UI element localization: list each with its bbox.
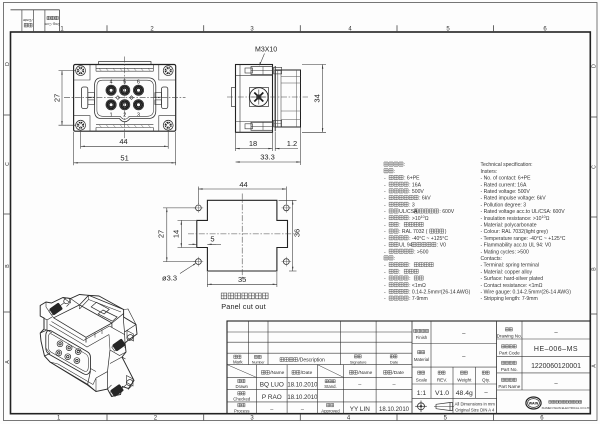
- svg-text:/Description: /Description: [298, 358, 325, 364]
- svg-text:/Date: /Date: [301, 370, 313, 376]
- svg-text:36: 36: [293, 229, 302, 237]
- svg-text:Checked: Checked: [233, 397, 251, 402]
- svg-text:: 0.14-2.5mm²(26-14 AWG): : 0.14-2.5mm²(26-14 AWG): [409, 290, 471, 296]
- svg-text::: :: [404, 162, 405, 168]
- svg-text:WAIN: WAIN: [529, 402, 539, 406]
- svg-text:- Rated impulse voltage: 6kV: - Rated impulse voltage: 6kV: [481, 196, 547, 202]
- svg-text:-: -: [384, 276, 386, 282]
- svg-text:-: -: [384, 283, 386, 289]
- svg-text:14: 14: [171, 230, 180, 238]
- svg-text:Stand.: Stand.: [324, 384, 336, 389]
- svg-text:V1.0: V1.0: [435, 390, 449, 397]
- svg-text:Process: Process: [234, 408, 250, 413]
- svg-text:: RAL 7032 (: : RAL 7032 (: [399, 229, 428, 235]
- svg-text:6: 6: [137, 80, 140, 86]
- svg-text:- Rated voltage: 500V: - Rated voltage: 500V: [481, 189, 531, 195]
- svg-text:Finish: Finish: [416, 335, 428, 340]
- svg-text:51: 51: [120, 154, 128, 163]
- svg-text:33.3: 33.3: [260, 152, 275, 161]
- svg-text:: 500V: : 500V: [409, 189, 424, 195]
- svg-text:A: A: [591, 364, 597, 368]
- svg-text:: -40°C ~ +125°C: : -40°C ~ +125°C: [409, 236, 448, 242]
- svg-text:18: 18: [249, 139, 257, 148]
- svg-text:18.10.2010: 18.10.2010: [379, 407, 410, 413]
- svg-text:- Insulation resistance: >1010: - Insulation resistance: >1010​Ω: [481, 215, 550, 222]
- svg-text:D: D: [5, 62, 11, 66]
- svg-text:UL/CSA: UL/CSA: [399, 209, 418, 215]
- svg-text:Dwg. Com: Dwg. Com: [44, 22, 60, 26]
- svg-text:HE–006–MS: HE–006–MS: [534, 346, 578, 353]
- svg-text:-: -: [384, 243, 386, 249]
- svg-text:-: -: [384, 176, 386, 182]
- svg-text:- Temperature range: -40°C ~ +: - Temperature range: -40°C ~ +125°C: [481, 236, 566, 242]
- svg-text:-: -: [384, 182, 386, 188]
- svg-text:Part Code: Part Code: [499, 351, 520, 356]
- svg-text::: :: [394, 256, 395, 262]
- svg-text:REV.: REV.: [437, 378, 447, 383]
- svg-text:18.10.2010: 18.10.2010: [287, 395, 318, 401]
- svg-text:B: B: [591, 267, 597, 271]
- svg-text:Number: Number: [252, 360, 266, 364]
- svg-text:: 6+PE: : 6+PE: [404, 176, 420, 182]
- svg-text::: :: [394, 169, 395, 175]
- svg-text:BQ LUO: BQ LUO: [260, 382, 284, 389]
- svg-text:Mark: Mark: [233, 359, 243, 364]
- svg-text:-: -: [384, 202, 386, 208]
- svg-text:4: 4: [110, 80, 113, 86]
- svg-text:: 6kV: : 6kV: [419, 196, 431, 202]
- svg-text:- Flammability acc.to UL 94: V: - Flammability acc.to UL 94: V0: [481, 243, 552, 249]
- svg-text:Qty.: Qty.: [482, 378, 490, 383]
- svg-text:C: C: [5, 162, 11, 166]
- svg-text:- Colour: RAL 7032(light grey): - Colour: RAL 7032(light grey): [481, 229, 549, 235]
- svg-text:Scale: Scale: [416, 378, 428, 383]
- svg-text:-: -: [384, 209, 386, 215]
- svg-text:XIAMEN WAIN ELECTRICAL CO.LTD: XIAMEN WAIN ELECTRICAL CO.LTD: [541, 406, 590, 410]
- svg-text:-: -: [384, 290, 386, 296]
- svg-text:Part Name: Part Name: [498, 384, 520, 389]
- svg-text:Drawing No.: Drawing No.: [497, 334, 522, 339]
- svg-text:- Contact resistance: <1mΩ: - Contact resistance: <1mΩ: [481, 283, 543, 289]
- svg-text:- Material: polycarbonate: - Material: polycarbonate: [481, 223, 537, 229]
- svg-text:5: 5: [210, 234, 214, 243]
- svg-text:-: -: [384, 229, 386, 235]
- svg-text:- Surface: hard-silver plated: - Surface: hard-silver plated: [481, 276, 544, 282]
- svg-text:-: -: [384, 189, 386, 195]
- svg-text:48.4g: 48.4g: [456, 390, 473, 397]
- svg-text:-: -: [384, 296, 386, 302]
- svg-text:- Wire gauge: 0.14-2.5mm²(26-1: - Wire gauge: 0.14-2.5mm²(26-14 AWG): [481, 290, 572, 296]
- svg-text:- Terminal: spring terminal: - Terminal: spring terminal: [481, 263, 540, 269]
- svg-text:- Mating cycles: >500: - Mating cycles: >500: [481, 249, 529, 255]
- svg-text::: :: [399, 269, 400, 275]
- svg-text:- Rated current: 16A: - Rated current: 16A: [481, 182, 527, 188]
- svg-text:B: B: [5, 264, 11, 268]
- svg-text:: V0: : V0: [437, 243, 446, 249]
- svg-text:-: -: [384, 223, 386, 229]
- svg-text:YY LIN: YY LIN: [350, 406, 371, 413]
- svg-text:UL 94: UL 94: [399, 243, 413, 249]
- svg-text:M3X10: M3X10: [255, 47, 277, 54]
- svg-text:Insters:: Insters:: [481, 169, 498, 175]
- svg-text:All Dimensions in mm: All Dimensions in mm: [455, 401, 496, 406]
- svg-text:Panel cut out: Panel cut out: [221, 302, 266, 311]
- svg-text::: :: [409, 263, 410, 269]
- svg-text:-: -: [384, 236, 386, 242]
- svg-text:D: D: [591, 64, 597, 68]
- svg-text:35: 35: [238, 275, 246, 284]
- svg-text:1.2: 1.2: [287, 139, 297, 148]
- svg-text:/Name: /Name: [270, 370, 284, 376]
- svg-text:Original Size DIN A 4: Original Size DIN A 4: [455, 408, 495, 413]
- svg-text:- Stripping length: 7-9mm: - Stripping length: 7-9mm: [481, 296, 538, 302]
- svg-text:Date: Date: [390, 359, 398, 364]
- svg-text:1:1: 1:1: [417, 390, 427, 397]
- svg-text:/Date: /Date: [22, 18, 32, 23]
- svg-text:1: 1: [110, 112, 113, 118]
- svg-text:): ): [445, 229, 447, 235]
- svg-text:Technical specification:: Technical specification:: [481, 162, 533, 168]
- svg-text:-: -: [384, 249, 386, 255]
- svg-text:27: 27: [52, 94, 61, 102]
- svg-text:3: 3: [137, 112, 140, 118]
- svg-text:: 7-9mm: : 7-9mm: [409, 296, 428, 302]
- svg-text:Contacts:: Contacts:: [481, 256, 503, 262]
- svg-text:: 600V: : 600V: [439, 209, 454, 215]
- svg-text:44: 44: [119, 137, 127, 146]
- svg-text:44: 44: [239, 180, 247, 189]
- svg-text:Signature: Signature: [350, 359, 367, 364]
- svg-text:Approved: Approved: [321, 408, 340, 413]
- svg-text:/Name: /Name: [358, 370, 372, 376]
- svg-text:- Material: copper alloy: - Material: copper alloy: [481, 269, 533, 275]
- svg-text:: >500: : >500: [414, 249, 428, 255]
- svg-text:-: -: [384, 269, 386, 275]
- svg-text:P RAO: P RAO: [262, 394, 282, 401]
- svg-text:Material: Material: [414, 357, 429, 362]
- svg-text:Drawn: Drawn: [236, 384, 249, 389]
- svg-text:ø3.3: ø3.3: [162, 273, 177, 282]
- svg-text:: 3: : 3: [409, 202, 415, 208]
- svg-text:/Date: /Date: [392, 370, 404, 376]
- svg-text:1220060120001: 1220060120001: [531, 363, 581, 370]
- svg-text:- Pollution degree: 3: - Pollution degree: 3: [481, 202, 527, 208]
- svg-text:: 16A: : 16A: [409, 182, 421, 188]
- svg-text:: <1mΩ: : <1mΩ: [409, 283, 426, 289]
- svg-text:A: A: [5, 360, 11, 364]
- svg-text:-: -: [384, 196, 386, 202]
- svg-text:- Rated voltage acc.to UL/CSA:: - Rated voltage acc.to UL/CSA: 600V: [481, 209, 566, 215]
- svg-text::: :: [399, 223, 400, 229]
- svg-text:-: -: [384, 263, 386, 269]
- svg-text:-: -: [384, 216, 386, 222]
- svg-text:34: 34: [312, 94, 321, 102]
- svg-text:- No. of contact: 6+PE: - No. of contact: 6+PE: [481, 176, 532, 182]
- svg-text:18.10.2010: 18.10.2010: [287, 383, 318, 389]
- svg-text:: >1010​Ω: : >1010​Ω: [409, 215, 429, 222]
- svg-text:Part No.: Part No.: [501, 367, 518, 372]
- svg-text:C: C: [591, 165, 597, 169]
- svg-text::: :: [409, 276, 410, 282]
- svg-text:27: 27: [157, 230, 166, 238]
- svg-text:Weight: Weight: [457, 378, 472, 383]
